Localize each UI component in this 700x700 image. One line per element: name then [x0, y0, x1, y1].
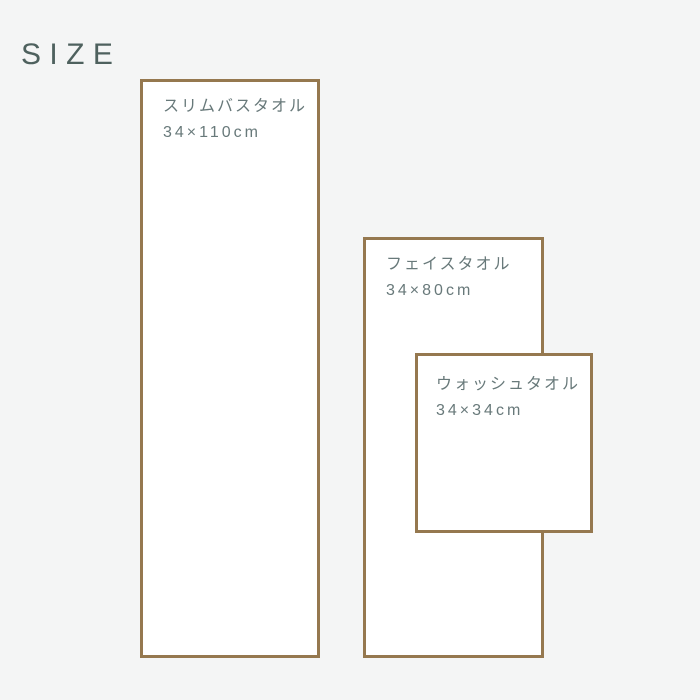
towel-name: フェイスタオル [386, 252, 541, 278]
towel-dimensions: 34×80cm [386, 278, 541, 304]
towel-rect-slim-bath: スリムバスタオル 34×110cm [140, 79, 320, 658]
size-diagram: SIZE スリムバスタオル 34×110cm フェイスタオル 34×80cm ウ… [0, 0, 700, 700]
towel-label: ウォッシュタオル 34×34cm [418, 356, 590, 424]
towel-rect-wash: ウォッシュタオル 34×34cm [415, 353, 593, 533]
towel-label: スリムバスタオル 34×110cm [143, 82, 317, 146]
towel-dimensions: 34×110cm [163, 120, 317, 146]
towel-name: スリムバスタオル [163, 94, 317, 120]
towel-name: ウォッシュタオル [436, 372, 590, 398]
towel-label: フェイスタオル 34×80cm [366, 240, 541, 304]
towel-dimensions: 34×34cm [436, 398, 590, 424]
page-title: SIZE [21, 38, 121, 71]
